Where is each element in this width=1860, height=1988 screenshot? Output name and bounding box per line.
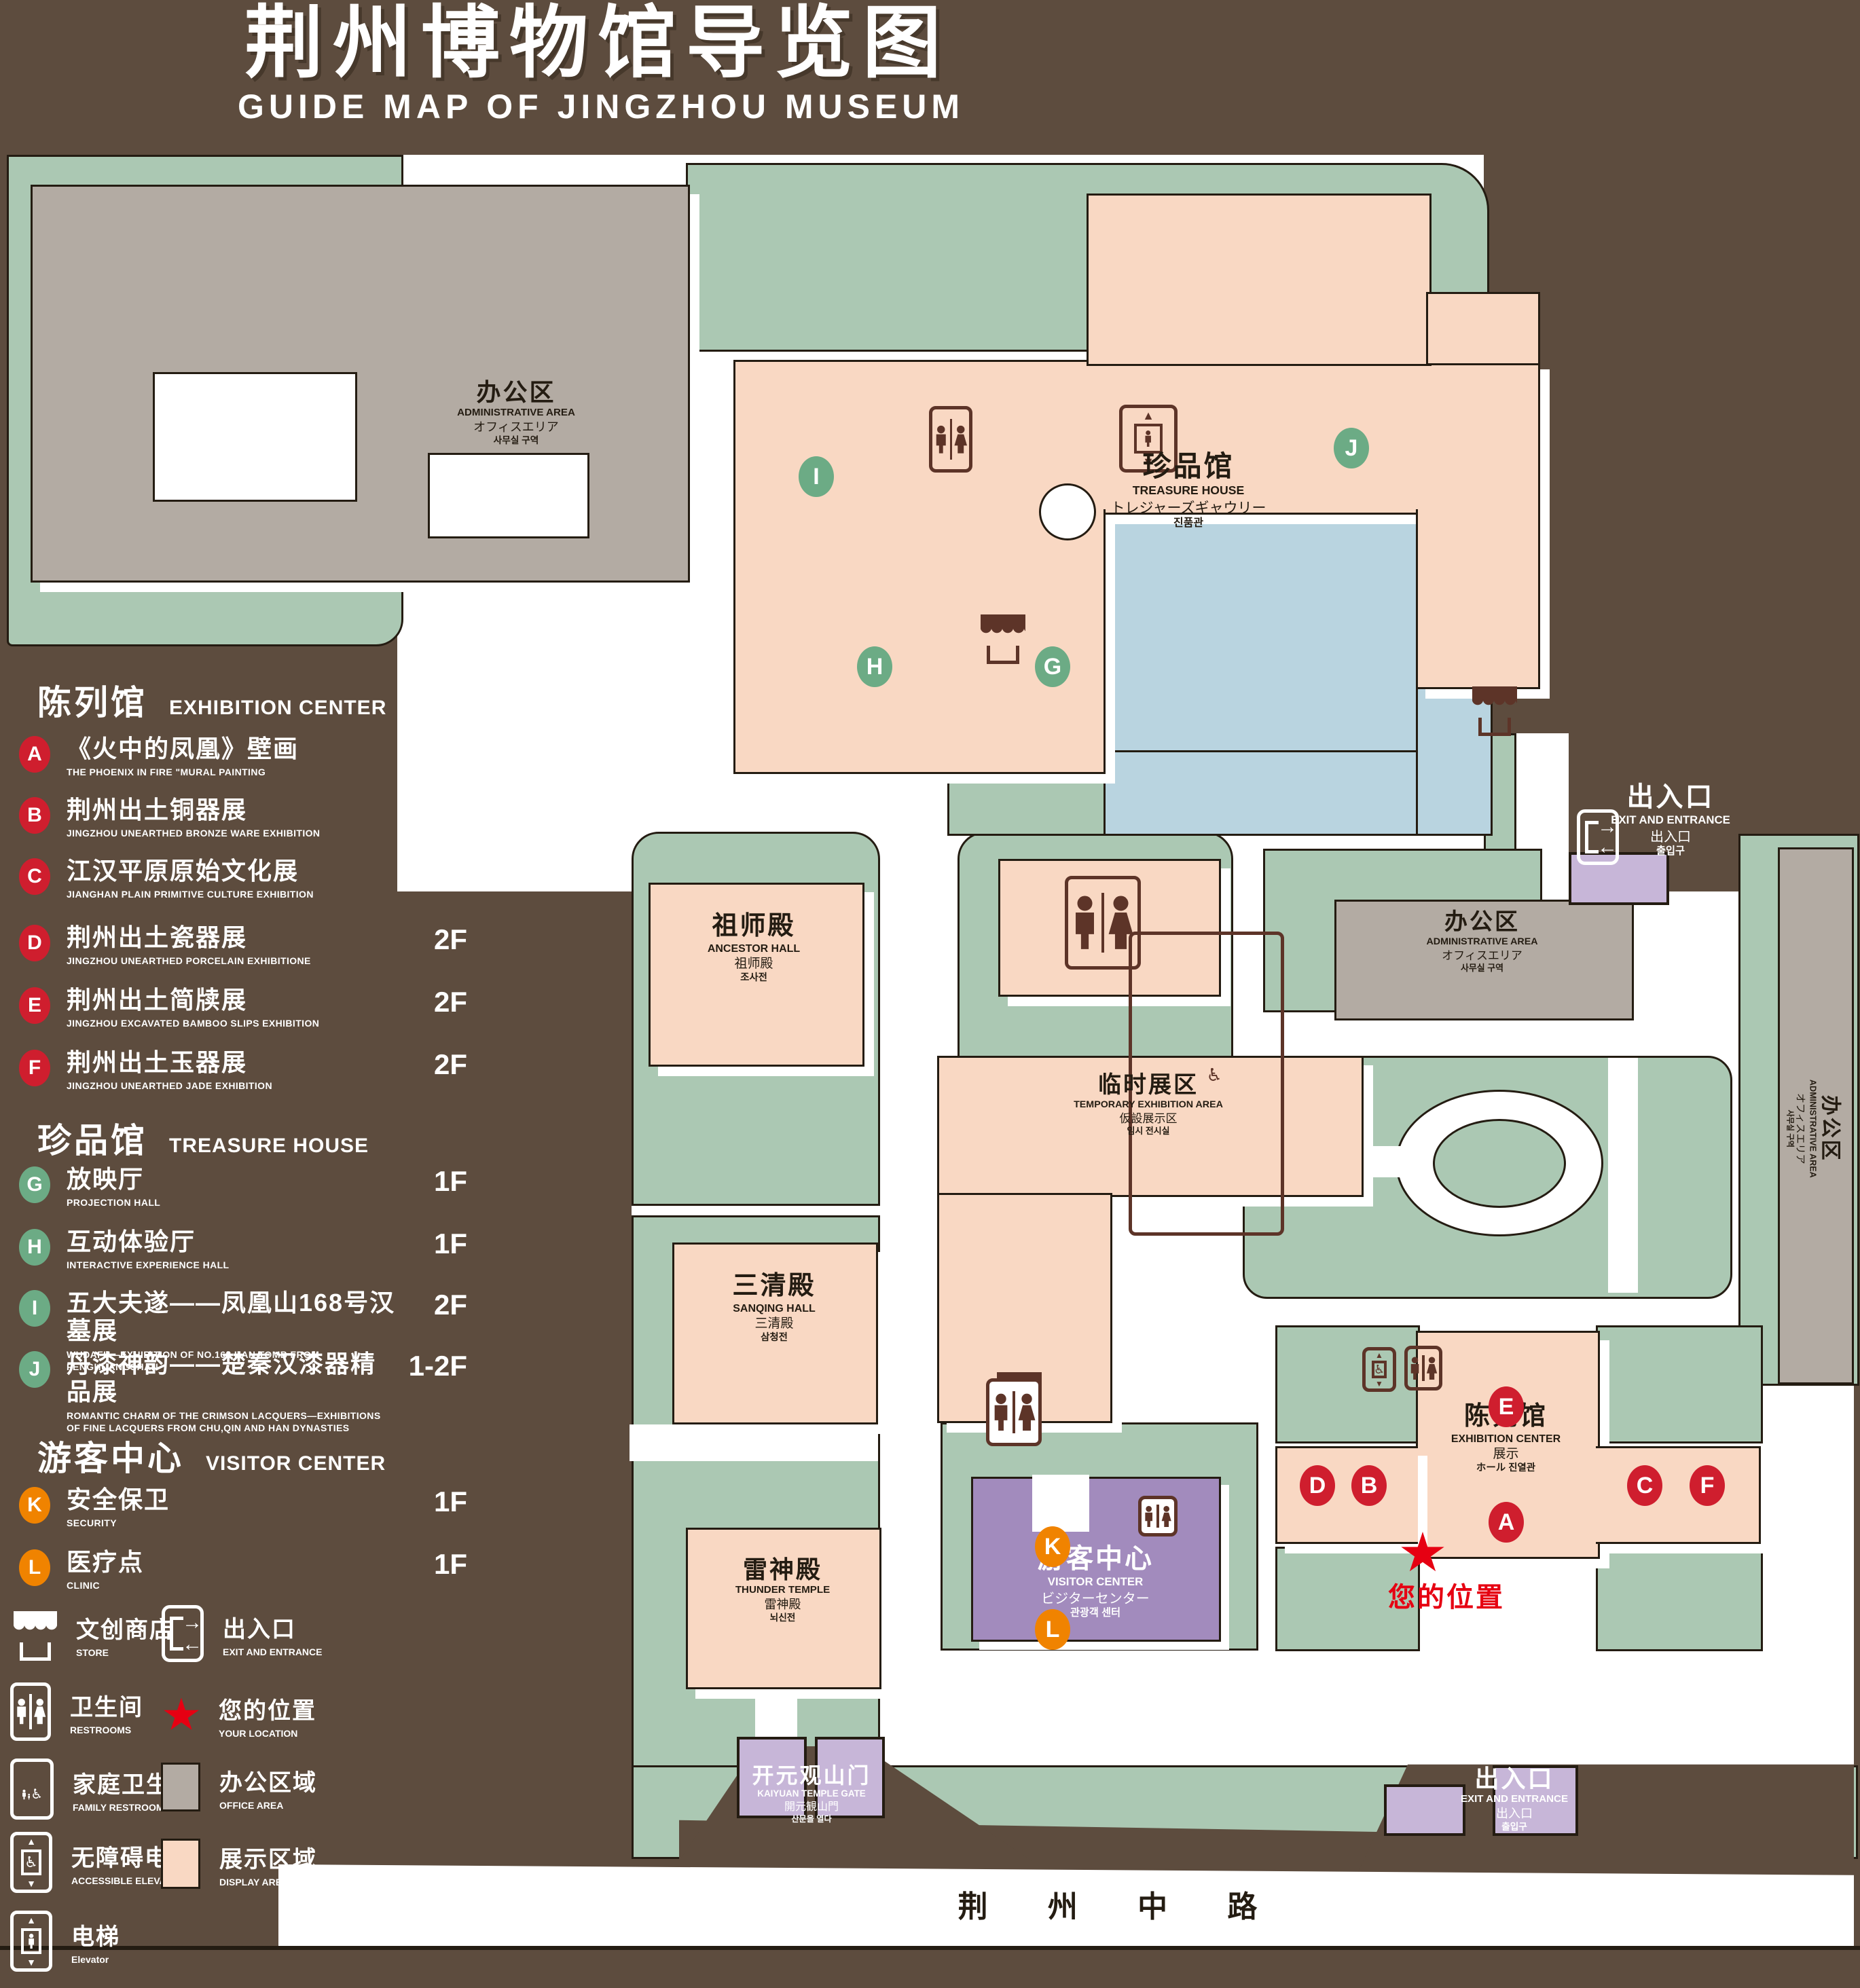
badge-i: I bbox=[19, 1290, 50, 1327]
legend-symbol-restrooms: 卫生间RESTROOMS bbox=[10, 1682, 143, 1741]
store-icon bbox=[1167, 1712, 1207, 1756]
legend-header-exhibition-center: 陈列馆EXHIBITION CENTER bbox=[37, 676, 386, 724]
path-left-column bbox=[630, 1424, 878, 1461]
thunder-temple-label: 雷神殿THUNDER TEMPLE 雷神殿뇌신전 bbox=[689, 1555, 876, 1624]
legend-symbol-display-area: 展示区域DISPLAY AREA bbox=[161, 1839, 317, 1889]
green-exh-tr bbox=[1596, 1325, 1763, 1443]
guide-map-poster: 荆州博物馆导览图 GUIDE MAP OF JINGZHOU MUSEUM bbox=[0, 0, 1860, 1988]
marker-d: D bbox=[1300, 1465, 1335, 1506]
legend-item-l: L 医疗点CLINIC 1F bbox=[19, 1548, 467, 1592]
marker-b: B bbox=[1351, 1465, 1387, 1506]
legend-item-c: C 江汉平原原始文化展JIANGHAN PLAIN PRIMITIVE CULT… bbox=[19, 857, 467, 901]
legend-item-g: G 放映厅PROJECTION HALL 1F bbox=[19, 1165, 467, 1209]
road-bottom-line bbox=[0, 1946, 1860, 1950]
legend-symbol-office-area: 办公区域OFFICE AREA bbox=[161, 1763, 317, 1811]
legend-item-e: E 荆州出土简牍展JINGZHOU EXCAVATED BAMBOO SLIPS… bbox=[19, 986, 467, 1030]
restrooms-icon bbox=[1404, 1346, 1442, 1391]
marker-c: C bbox=[1627, 1465, 1662, 1506]
badge-l: L bbox=[19, 1549, 50, 1586]
restrooms-icon bbox=[986, 1378, 1042, 1446]
legend-item-a: A 《火中的凤凰》壁画THE PHOENIX IN FIRE "MURAL PA… bbox=[19, 735, 467, 779]
exhibition-center-east-wing bbox=[1596, 1446, 1761, 1544]
legend-header-visitor-center: 游客中心VISITOR CENTER bbox=[37, 1431, 386, 1480]
visitor-center-label: 游客中心VISITOR CENTER ビジターセンター관광객 센터 bbox=[977, 1543, 1214, 1619]
legend-item-j: J 丹漆神韵——楚秦汉漆器精品展ROMANTIC CHARM OF THE CR… bbox=[19, 1350, 467, 1434]
treasure-house-east-arm bbox=[1416, 509, 1540, 689]
badge-f: F bbox=[19, 1050, 50, 1086]
sanqing-hall-label: 三清殿SANQING HALL 三清殿삼청전 bbox=[676, 1271, 873, 1344]
legend-symbol-exit: →← 出入口EXIT AND ENTRANCE bbox=[162, 1605, 323, 1662]
treasure-house-tower-east bbox=[1426, 292, 1540, 365]
exhibition-center-west-wing bbox=[1275, 1446, 1418, 1544]
display-area-swatch bbox=[161, 1839, 200, 1889]
legend-item-f: F 荆州出土玉器展JINGZHOU UNEARTHED JADE EXHIBIT… bbox=[19, 1048, 467, 1092]
temporary-exhibition-label: 临时展区TEMPORARY EXHIBITION AREA 仮設展示区임시 전시… bbox=[941, 1071, 1356, 1137]
legend-symbol-your-location: 您的位置YOUR LOCATION bbox=[163, 1692, 316, 1739]
marker-h: H bbox=[857, 646, 892, 687]
accessible-elevator-icon: ▲♿▼ bbox=[1362, 1347, 1396, 1392]
office-topleft-label: 办公区ADMINISTRATIVE AREA オフィスエリア사무실 구역 bbox=[407, 378, 625, 447]
marker-l: L bbox=[1035, 1609, 1070, 1650]
road-label: 荆 州 中 路 bbox=[815, 1882, 1426, 1926]
legend-item-k: K 安全保卫SECURITY 1F bbox=[19, 1486, 467, 1530]
badge-h: H bbox=[19, 1229, 50, 1266]
elevator-icon: ▲▼ bbox=[10, 1911, 52, 1972]
office-courtyard-2 bbox=[428, 453, 589, 538]
marker-e: E bbox=[1489, 1386, 1524, 1427]
your-location-star bbox=[163, 1698, 200, 1733]
badge-d: D bbox=[19, 925, 50, 961]
page-title: 荆州博物馆导览图 bbox=[0, 0, 1195, 87]
legend-symbol-store: 文创商店STORE bbox=[14, 1608, 174, 1661]
badge-a: A bbox=[19, 736, 50, 773]
legend-item-h: H 互动体验厅INTERACTIVE EXPERIENCE HALL 1F bbox=[19, 1228, 467, 1272]
legend-symbol-elevator: ▲▼ 电梯Elevator bbox=[10, 1911, 120, 1972]
exit-bottom-label: 出入口EXIT AND ENTRANCE 出入口출입구 bbox=[1412, 1764, 1616, 1833]
legend-header-treasure-house: 珍品馆TREASURE HOUSE bbox=[37, 1113, 369, 1162]
treasure-house-label: 珍品馆TREASURE HOUSE トレジャーズギャウリー진품관 bbox=[1053, 449, 1324, 530]
store-icon bbox=[1472, 683, 1517, 736]
page-subtitle: GUIDE MAP OF JINGZHOU MUSEUM bbox=[0, 87, 1202, 126]
garden-path-v bbox=[1608, 1058, 1638, 1293]
badge-e: E bbox=[19, 987, 50, 1024]
office-right-label: 办公区ADMINISTRATIVE AREA オフィスエリア사무실 구역 bbox=[1365, 908, 1599, 974]
office-courtyard-1 bbox=[153, 372, 357, 502]
kaiyuan-gate-label: 开元观山门KAIYUAN TEMPLE GATE 開元観山門산문을 열다 bbox=[693, 1763, 930, 1824]
marker-i: I bbox=[799, 456, 834, 497]
exit-icon: →← bbox=[162, 1605, 204, 1662]
badge-k: K bbox=[19, 1487, 50, 1524]
badge-g: G bbox=[19, 1166, 50, 1203]
your-location-label: 您的位置 bbox=[1351, 1575, 1542, 1615]
marker-j: J bbox=[1334, 428, 1369, 468]
restrooms-icon bbox=[1138, 1496, 1178, 1536]
office-right-edge-label: 办公区ADMINISTRATIVE AREA オフィスエリア사무실 구역 bbox=[1785, 1027, 1842, 1230]
legend-item-d: D 荆州出土瓷器展JINGZHOU UNEARTHED PORCELAIN EX… bbox=[19, 923, 467, 968]
ancestor-hall-label: 祖师殿ANCESTOR HALL 祖师殿조사전 bbox=[652, 911, 856, 984]
green-exh-tl bbox=[1275, 1325, 1420, 1443]
restrooms-icon bbox=[10, 1682, 51, 1741]
accessible-elevator-icon: ▲♿▼ bbox=[10, 1832, 52, 1893]
badge-b: B bbox=[19, 797, 50, 834]
green-exh-br bbox=[1596, 1547, 1763, 1651]
store-icon bbox=[14, 1608, 57, 1661]
legend-item-b: B 荆州出土铜器展JINGZHOU UNEARTHED BRONZE WARE … bbox=[19, 796, 467, 840]
garden-inner-green bbox=[1433, 1119, 1566, 1208]
treasure-house-west-hall bbox=[733, 509, 1106, 774]
marker-g: G bbox=[1035, 646, 1070, 687]
badge-c: C bbox=[19, 858, 50, 895]
visitor-center-notch bbox=[1032, 1475, 1089, 1532]
office-area-swatch bbox=[161, 1763, 200, 1811]
restrooms-icon bbox=[929, 406, 972, 473]
exit-right-label: 出入口EXIT AND ENTRANCE 出入口출입구 bbox=[1569, 781, 1772, 858]
marker-k: K bbox=[1035, 1526, 1070, 1567]
marker-a: A bbox=[1489, 1502, 1524, 1543]
family-restrooms-icon: ♿ bbox=[10, 1759, 54, 1820]
store-icon bbox=[981, 611, 1025, 664]
treasure-house-tower bbox=[1087, 194, 1432, 366]
marker-f: F bbox=[1690, 1465, 1725, 1506]
badge-j: J bbox=[19, 1351, 50, 1388]
